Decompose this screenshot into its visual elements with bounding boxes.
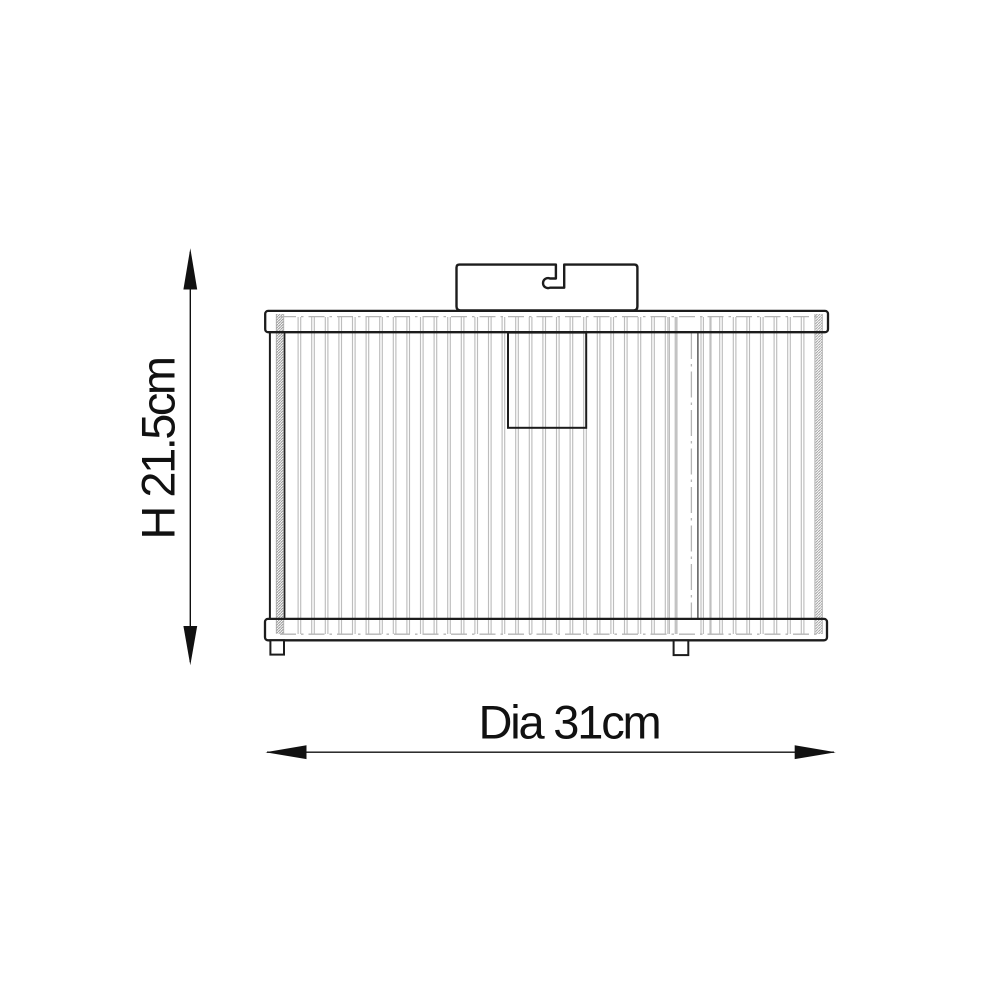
svg-text:H 21.5cm: H 21.5cm <box>132 358 185 539</box>
svg-text:Dia 31cm: Dia 31cm <box>479 696 660 749</box>
